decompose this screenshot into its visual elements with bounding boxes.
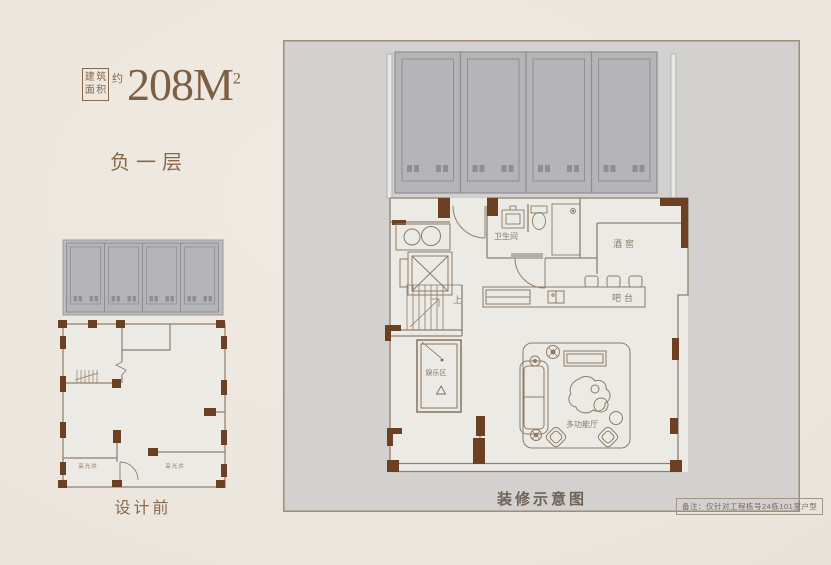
parking-stall — [395, 52, 461, 193]
bar-label: 吧台 — [612, 292, 636, 303]
floor-label: 负一层 — [110, 146, 188, 175]
light-well-label: 采光井 — [78, 462, 98, 470]
brochure-page: 建 筑 面 积 约 208M2 负一层 — [0, 0, 831, 565]
area-approx-char: 约 — [112, 70, 123, 86]
light-well-label: 采光井 — [165, 462, 185, 470]
before-design-floorplan: 采光井 采光井 — [58, 236, 230, 492]
parking-stall — [67, 243, 105, 312]
unit-floor — [63, 324, 225, 487]
area-prefix-char: 建 — [85, 73, 95, 83]
parking-stall — [526, 52, 592, 193]
multi-function-label: 多功能厅 — [566, 419, 598, 429]
area-prefix-box: 建 筑 面 积 — [82, 68, 109, 101]
parking-area — [387, 52, 676, 198]
billiard-ball — [441, 359, 444, 362]
parking-stall — [143, 243, 181, 312]
area-superscript: 2 — [233, 71, 241, 88]
stairs-up-label: 上 — [453, 295, 462, 305]
area-value: 208M2 — [127, 64, 241, 105]
note-box: 备注：仅针对工程栋号24栋101室户型 — [676, 498, 823, 515]
parking-stall — [592, 52, 658, 193]
before-plan-caption: 设计前 — [93, 494, 193, 518]
parking-stall — [181, 243, 219, 312]
area-prefix-char: 面 — [85, 86, 95, 96]
bathroom-label: 卫生间 — [494, 231, 518, 241]
parking-stall — [105, 243, 143, 312]
door-threshold — [511, 253, 543, 259]
decorated-floorplan: 上 卫生间 酒窖 吧台 — [283, 40, 800, 512]
area-line: 建 筑 面 积 约 208M2 — [82, 64, 241, 105]
wine-cellar-label: 酒窖 — [613, 238, 637, 249]
entertainment-label: 娱乐区 — [426, 368, 447, 377]
parking-stall — [461, 52, 527, 193]
area-prefix-char: 筑 — [96, 73, 106, 83]
parking-area — [63, 240, 223, 315]
area-prefix-char: 积 — [96, 86, 106, 96]
